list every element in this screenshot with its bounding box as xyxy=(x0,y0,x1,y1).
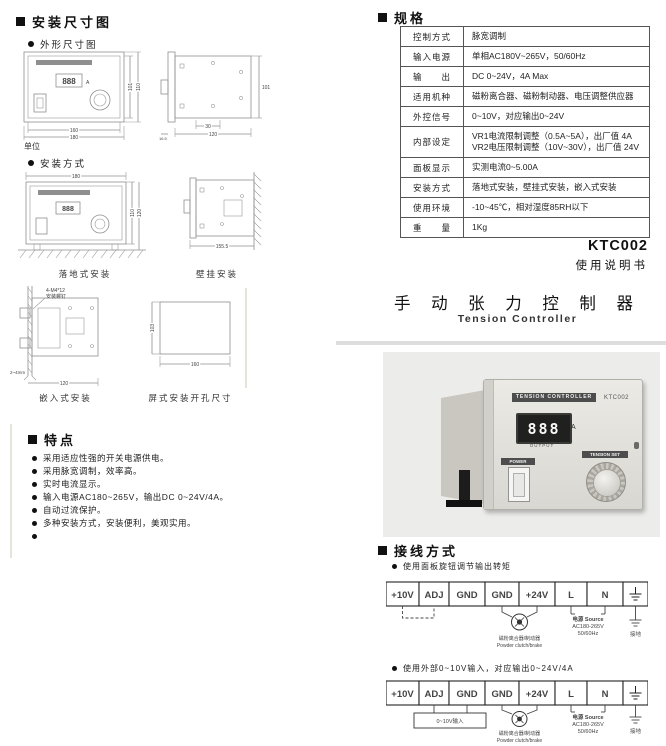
feature-item: 采用脉宽调制，效率高。 xyxy=(32,465,312,478)
terminal-label: L xyxy=(568,590,574,601)
manual-label: 使用说明书 xyxy=(480,257,648,273)
section-square-icon xyxy=(28,435,37,444)
bullet-dot-icon xyxy=(392,564,397,569)
device-front-panel: TENSION CONTROLLER KTC002 888 A OUTPUT P… xyxy=(483,379,643,510)
terminal-label: N xyxy=(602,689,609,700)
clutch-label-en: Powder clutch/brake xyxy=(497,643,543,649)
ground-hatch xyxy=(20,250,143,258)
spec-label: 输入电源 xyxy=(401,47,464,67)
spec-label: 控制方式 xyxy=(401,27,464,47)
source-label-2: AC180-265V xyxy=(572,624,604,630)
wiring-note-2: 使用外部0~10V输入，对应输出0~24V/4A xyxy=(392,663,574,674)
dim-height-inner: 101 xyxy=(128,83,134,92)
dim-depth: 120 xyxy=(209,132,218,138)
panel-cutout-drawing: 103 160 xyxy=(138,296,243,376)
clutch-label-cn: 磁粉离合器/制动器 xyxy=(499,635,540,642)
outline-side-view-drawing: 101 30 120 16.5 xyxy=(158,48,273,140)
spec-label: 适用机种 xyxy=(401,87,464,107)
feature-text: 实时电流显示。 xyxy=(43,478,106,491)
wall-hatch xyxy=(254,174,261,245)
product-title-cn: 手 动 张 力 控 制 器 xyxy=(375,290,660,314)
table-row: 控制方式脉宽调制 xyxy=(401,27,650,47)
terminal-label: GND xyxy=(456,689,477,700)
unit-note: 单位 xyxy=(24,141,40,152)
screw-note2: 安装螺钉 xyxy=(46,293,66,300)
power-label: POWER xyxy=(501,458,535,465)
clutch-symbol-center xyxy=(515,618,524,627)
dim-width-outer: 180 xyxy=(70,135,79,140)
ext-input-wires xyxy=(434,705,467,713)
wiring-diagram-external-input: +10V ADJ GND GND +24V L N 0~10V输入 磁粉离合器/… xyxy=(386,679,648,745)
feature-text: 多种安装方式，安装便利，美观实用。 xyxy=(43,517,196,530)
bullet-dot-icon xyxy=(32,508,37,513)
feature-item: 多种安装方式，安装便利，美观实用。 xyxy=(32,517,312,530)
bullet-dot-icon xyxy=(392,666,397,671)
brand-bar xyxy=(36,60,92,65)
feature-item: 采用适应性强的开关电源供电。 xyxy=(32,452,312,465)
gap-note: 2~4mm xyxy=(10,370,25,375)
clutch-label-en: Powder clutch/brake xyxy=(497,738,543,744)
table-row: 面板显示实测电流0~5.00A xyxy=(401,158,650,178)
panel-hatch xyxy=(28,288,32,373)
mounting-bracket-base xyxy=(446,500,482,507)
dim-floor-h2: 120 xyxy=(137,209,143,218)
dim-hole-spacing: 30 xyxy=(205,124,211,130)
table-row: 安装方式落地式安装，壁挂式安装，嵌入式安装 xyxy=(401,178,650,198)
terminal-label: +24V xyxy=(526,689,549,700)
feature-text: 输入电源AC180~265V，输出DC 0~24V/4A。 xyxy=(43,491,229,504)
wiring-diagram-panel-knob: +10V ADJ GND GND +24V L N 磁粉离合器/制动器 Powd… xyxy=(386,578,648,658)
terminal-label: +24V xyxy=(526,590,549,601)
tension-knob[interactable] xyxy=(586,462,626,502)
model-label: KTC002 xyxy=(604,395,629,401)
section-wiring: 接线方式 xyxy=(378,541,458,560)
section-specs: 规格 xyxy=(378,8,426,27)
subsection-install-method: 安装方式 xyxy=(28,156,86,170)
tension-set-label: TENSION SET xyxy=(582,451,628,458)
model-number: KTC002 xyxy=(480,238,648,254)
side-latch xyxy=(634,442,639,449)
spec-value: -10~45℃，相对湿度85RH以下 xyxy=(464,198,650,218)
display-digits: 888 xyxy=(527,420,560,438)
dim-cutout-height: 103 xyxy=(150,324,156,333)
earth-label: 接地 xyxy=(630,630,642,638)
table-row: 外控信号0~10V，对应输出0~24V xyxy=(401,107,650,127)
product-photo: TENSION CONTROLLER KTC002 888 A OUTPUT P… xyxy=(383,352,660,537)
spec-value: 实测电流0~5.00A xyxy=(464,158,650,178)
clutch-wires xyxy=(502,606,537,617)
spec-value: 磁粉离合器、磁粉制动器、电压调整供应器 xyxy=(464,87,650,107)
source-wires xyxy=(571,705,605,712)
feature-text: 采用适应性强的开关电源供电。 xyxy=(43,452,169,465)
wall-mount-drawing: 155.5 xyxy=(162,170,272,262)
wiring-note-text: 使用面板旋钮调节输出转矩 xyxy=(403,561,511,572)
dim-wall-depth: 155.5 xyxy=(216,244,229,250)
subsection-title: 安装方式 xyxy=(40,156,86,170)
wall-mount-caption: 壁挂安装 xyxy=(162,268,272,280)
bullet-dot-icon xyxy=(32,469,37,474)
table-row: 输入电源单相AC180V~265V，50/60Hz xyxy=(401,47,650,67)
knob-cap[interactable] xyxy=(593,469,621,497)
spec-label: 重 量 xyxy=(401,218,464,238)
spec-table: 控制方式脉宽调制 输入电源单相AC180V~265V，50/60Hz 输 出DC… xyxy=(400,26,650,238)
switch-rocker[interactable] xyxy=(513,473,525,497)
display-digits: 888 xyxy=(62,77,76,86)
floor-mount-drawing: 180 888 110 120 xyxy=(18,170,148,262)
brand-bar: TENSION CONTROLLER xyxy=(512,393,596,402)
amp-label: A xyxy=(86,80,90,86)
spec-label: 面板显示 xyxy=(401,158,464,178)
clutch-wires xyxy=(502,705,537,714)
display-digits: 888 xyxy=(62,206,74,213)
ext-input-label: 0~10V输入 xyxy=(436,717,464,725)
jumper-dashed-link xyxy=(403,606,435,618)
clutch-symbol-center xyxy=(516,715,524,723)
panel-cutout-caption: 屏式安装开孔尺寸 xyxy=(128,392,253,404)
wiring-note-1: 使用面板旋钮调节输出转矩 xyxy=(392,561,511,572)
terminal-label: +10V xyxy=(391,590,414,601)
scan-artifact-line xyxy=(245,288,247,388)
table-row: 适用机种磁粉离合器、磁粉制动器、电压调整供应器 xyxy=(401,87,650,107)
clutch-label-cn: 磁粉离合器/制动器 xyxy=(499,730,540,737)
section-square-icon xyxy=(378,13,387,22)
floor-mount-caption: 落地式安装 xyxy=(20,268,150,280)
manual-page: 安装尺寸图 外形尺寸图 888 A 101 110 160 180 单位 xyxy=(0,0,666,746)
spec-label: 内部设定 xyxy=(401,127,464,158)
terminal-label: GND xyxy=(491,590,512,601)
terminal-label: GND xyxy=(456,590,477,601)
output-label: OUTPUT xyxy=(516,443,568,448)
spec-label: 安装方式 xyxy=(401,178,464,198)
wiring-note-text: 使用外部0~10V输入，对应输出0~24V/4A xyxy=(403,663,574,674)
spec-label: 外控信号 xyxy=(401,107,464,127)
bullet-dot-icon xyxy=(32,521,37,526)
outline-front-view-drawing: 888 A 101 110 160 180 xyxy=(20,48,145,140)
product-title-en: Tension Controller xyxy=(375,313,660,325)
table-row: 输 出DC 0~24V，4A Max xyxy=(401,67,650,87)
dim-flush-depth: 120 xyxy=(60,381,69,387)
spec-label: 输 出 xyxy=(401,67,464,87)
source-label-3: 50/60Hz xyxy=(578,729,599,735)
spec-value: VR1电流限制调整（0.5A~5A），出厂值 4AVR2电压限制调整（10V~3… xyxy=(464,127,650,158)
earth-label: 接地 xyxy=(630,727,642,735)
section-features: 特点 xyxy=(28,430,76,449)
feature-item: 输入电源AC180~265V，输出DC 0~24V/4A。 xyxy=(32,491,312,504)
bullet-dot-icon xyxy=(32,495,37,500)
feature-text: 采用脉宽调制，效率高。 xyxy=(43,465,142,478)
dim-floor-width: 180 xyxy=(72,174,81,180)
table-row: 使用环境-10~45℃，相对湿度85RH以下 xyxy=(401,198,650,218)
dim-flange: 16.5 xyxy=(159,136,168,140)
power-switch[interactable] xyxy=(508,467,530,502)
spec-value: 单相AC180V~265V，50/60Hz xyxy=(464,47,650,67)
section-title: 安装尺寸图 xyxy=(32,12,112,31)
bullet-dot-icon xyxy=(32,482,37,487)
section-square-icon xyxy=(378,546,387,555)
current-display: 888 xyxy=(516,413,572,444)
spec-value: 脉宽调制 xyxy=(464,27,650,47)
dim-height-outer: 110 xyxy=(136,83,142,91)
spec-value-line2: VR2电压限制调整（10V~30V），出厂值 24V xyxy=(472,142,649,153)
bullet-dot-icon xyxy=(28,160,34,166)
spec-value-line1: VR1电流限制调整（0.5A~5A），出厂值 4A xyxy=(472,131,649,142)
terminal-label: ADJ xyxy=(424,590,443,601)
table-row: 内部设定 VR1电流限制调整（0.5A~5A），出厂值 4AVR2电压限制调整（… xyxy=(401,127,650,158)
feature-text: 自动过流保护。 xyxy=(43,504,106,517)
scan-artifact-line xyxy=(10,424,12,558)
feature-item: 实时电流显示。 xyxy=(32,478,312,491)
spec-value: 0~10V，对应输出0~24V xyxy=(464,107,650,127)
feature-list: 采用适应性强的开关电源供电。 采用脉宽调制，效率高。 实时电流显示。 输入电源A… xyxy=(32,452,312,539)
bullet-dot-icon xyxy=(32,534,37,539)
dim-side-height: 101 xyxy=(262,85,271,91)
section-install-dimensions: 安装尺寸图 xyxy=(16,12,112,31)
source-label-2: AC180-265V xyxy=(572,722,604,728)
dim-width-inner: 160 xyxy=(70,128,79,134)
section-title: 接线方式 xyxy=(394,541,458,560)
feature-item: 自动过流保护。 xyxy=(32,504,312,517)
dim-floor-h1: 110 xyxy=(130,209,136,217)
spec-label: 使用环境 xyxy=(401,198,464,218)
source-label-1: 电源 Source xyxy=(572,615,603,623)
source-label-1: 电源 Source xyxy=(572,713,603,721)
terminal-label: ADJ xyxy=(424,689,443,700)
source-label-3: 50/60Hz xyxy=(578,631,599,637)
bullet-dot-icon xyxy=(32,456,37,461)
table-row: 重 量1Kg xyxy=(401,218,650,238)
terminal-label: N xyxy=(602,590,609,601)
feature-item xyxy=(32,530,312,539)
section-title: 特点 xyxy=(44,430,76,449)
flush-mount-drawing: 4-M4*12 安装螺钉 2~4mm 120 xyxy=(8,284,123,388)
earth-wire xyxy=(630,606,642,626)
section-title: 规格 xyxy=(394,8,426,27)
earth-wire xyxy=(630,705,642,723)
terminal-label: L xyxy=(568,689,574,700)
spec-value: 1Kg xyxy=(464,218,650,238)
spec-value: 落地式安装，壁挂式安装，嵌入式安装 xyxy=(464,178,650,198)
dim-cutout-width: 160 xyxy=(191,362,200,368)
section-divider xyxy=(336,341,666,345)
terminal-label: GND xyxy=(491,689,512,700)
source-wires xyxy=(571,606,605,614)
terminal-label: +10V xyxy=(391,689,414,700)
spec-value: DC 0~24V，4A Max xyxy=(464,67,650,87)
amp-label: A xyxy=(571,424,576,431)
section-square-icon xyxy=(16,17,25,26)
flush-mount-caption: 嵌入式安装 xyxy=(8,392,123,404)
panel-hinge-strip xyxy=(484,380,494,509)
bullet-dot-icon xyxy=(28,41,34,47)
